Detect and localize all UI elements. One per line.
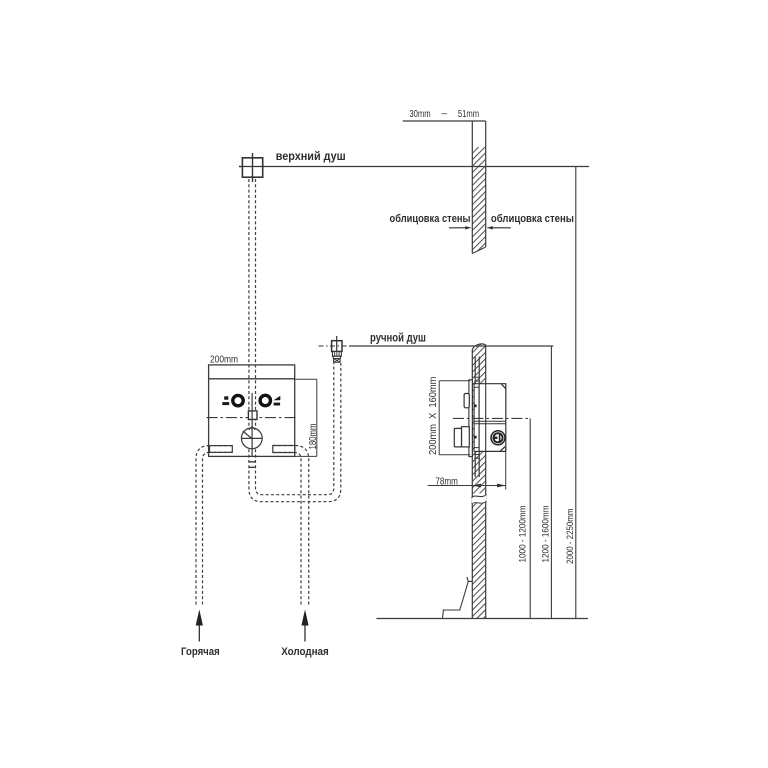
svg-text:2000 - 2250mm: 2000 - 2250mm: [565, 508, 575, 564]
svg-text:30mm: 30mm: [409, 109, 430, 120]
svg-text:1000 - 1200mm: 1000 - 1200mm: [517, 505, 527, 562]
svg-text:–: –: [442, 108, 448, 119]
svg-text:180mm: 180mm: [308, 424, 319, 450]
svg-text:ручной душ: ручной душ: [370, 333, 426, 345]
svg-text:верхний душ: верхний душ: [276, 151, 346, 163]
svg-text:51mm: 51mm: [458, 109, 479, 120]
svg-text:облицовка стены: облицовка стены: [491, 213, 574, 225]
svg-text:Холодная: Холодная: [281, 646, 329, 658]
svg-text:облицовка стены: облицовка стены: [390, 213, 471, 225]
svg-text:Горячая: Горячая: [181, 646, 220, 658]
svg-text:200mm: 200mm: [210, 354, 238, 365]
svg-text:1200 - 1600mm: 1200 - 1600mm: [541, 505, 551, 562]
svg-text:200mm X 160mm: 200mm X 160mm: [428, 377, 439, 455]
svg-text:78mm: 78mm: [435, 477, 458, 488]
